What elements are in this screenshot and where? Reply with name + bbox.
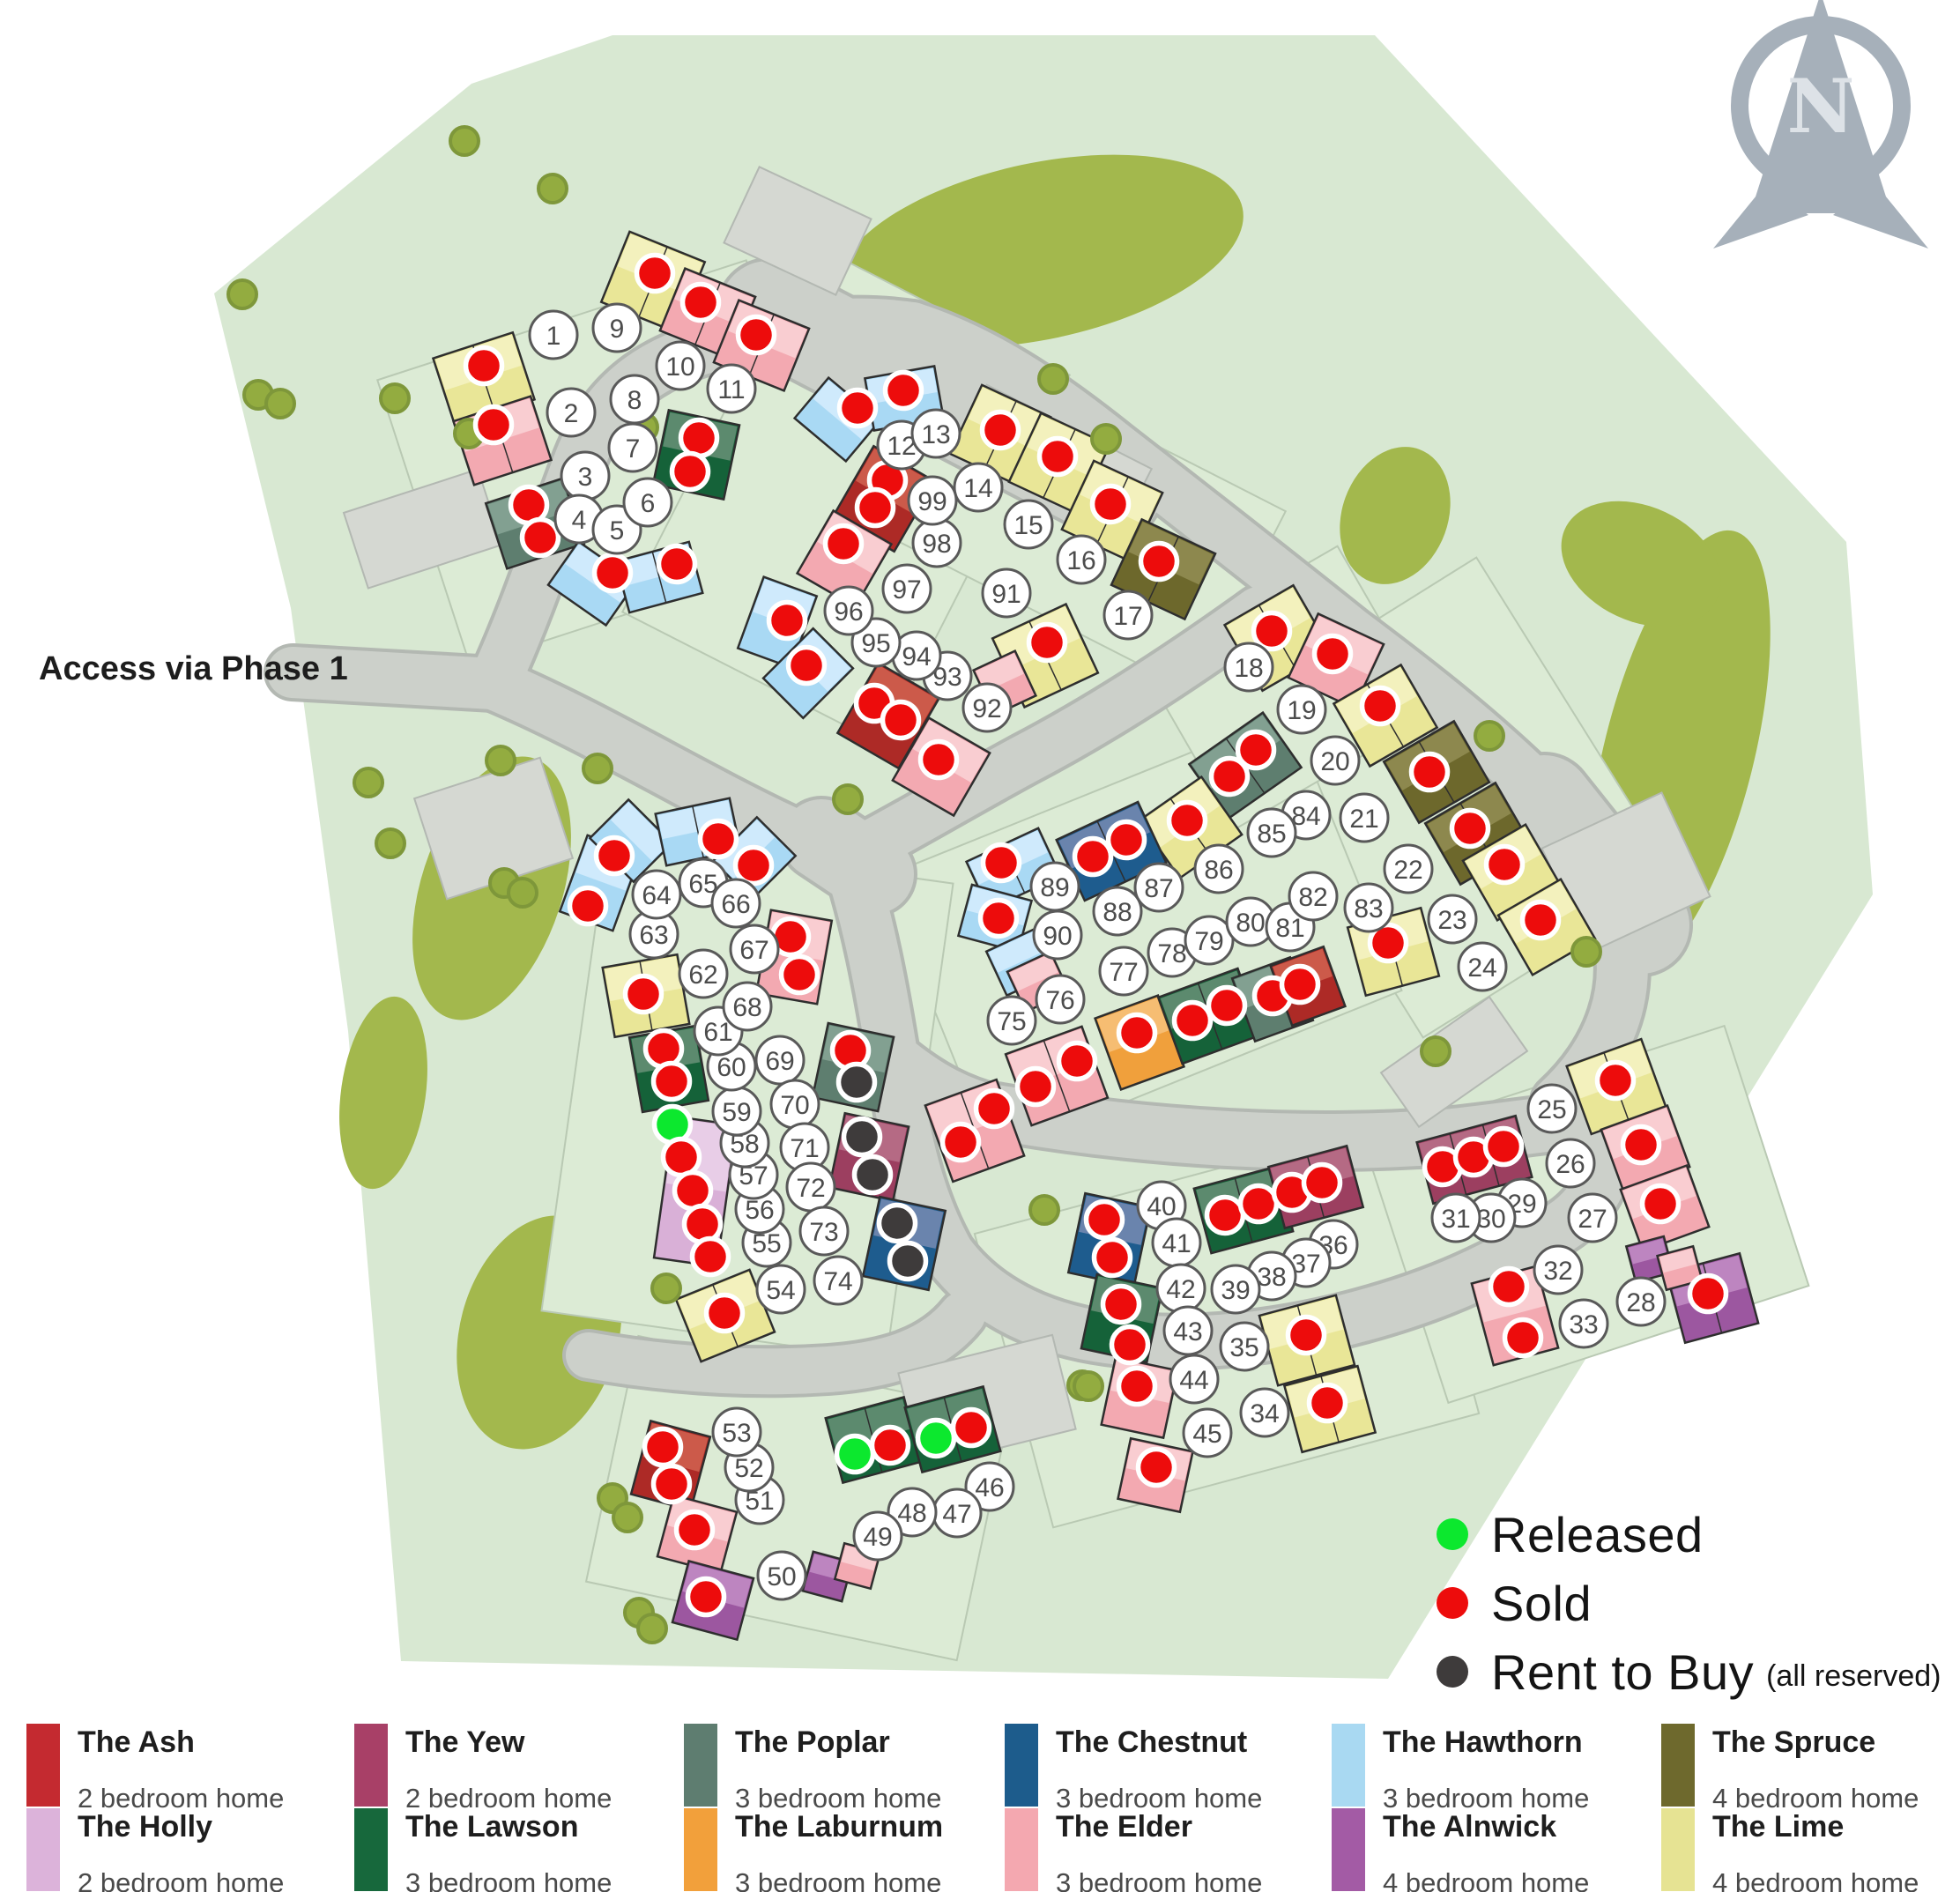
svg-text:3: 3 bbox=[578, 463, 593, 492]
tree-icon bbox=[376, 829, 405, 857]
plot-marker-24[interactable]: 24 bbox=[1459, 943, 1506, 991]
svg-text:7: 7 bbox=[626, 434, 641, 464]
svg-text:11: 11 bbox=[717, 375, 745, 404]
svg-text:76: 76 bbox=[1045, 986, 1074, 1015]
status-dot-sold bbox=[597, 838, 633, 874]
status-dot-sold bbox=[1282, 967, 1318, 1003]
status-dot-sold bbox=[1207, 1198, 1244, 1234]
plot-marker-19[interactable]: 19 bbox=[1278, 686, 1325, 733]
svg-text:39: 39 bbox=[1221, 1276, 1250, 1305]
svg-text:24: 24 bbox=[1467, 953, 1496, 983]
status-dot-sold bbox=[688, 1579, 724, 1615]
plot-marker-86[interactable]: 86 bbox=[1195, 845, 1243, 893]
svg-text:14: 14 bbox=[963, 474, 992, 503]
svg-text:34: 34 bbox=[1250, 1399, 1279, 1428]
plot-marker-59[interactable]: 59 bbox=[713, 1087, 761, 1135]
plot-marker-74[interactable]: 74 bbox=[814, 1257, 862, 1304]
svg-text:99: 99 bbox=[917, 487, 947, 516]
svg-text:27: 27 bbox=[1578, 1205, 1607, 1234]
svg-text:67: 67 bbox=[739, 936, 768, 965]
plot-marker-16[interactable]: 16 bbox=[1058, 536, 1105, 583]
tree-icon bbox=[228, 280, 256, 308]
access-label: Access via Phase 1 bbox=[39, 650, 348, 688]
svg-text:91: 91 bbox=[991, 580, 1021, 609]
svg-text:38: 38 bbox=[1257, 1263, 1286, 1292]
svg-text:63: 63 bbox=[639, 921, 668, 950]
tree-icon bbox=[266, 390, 294, 418]
plot-marker-96[interactable]: 96 bbox=[825, 587, 872, 634]
svg-text:87: 87 bbox=[1144, 874, 1173, 903]
svg-text:35: 35 bbox=[1229, 1333, 1258, 1362]
plot-marker-21[interactable]: 21 bbox=[1340, 794, 1388, 842]
svg-text:8: 8 bbox=[627, 386, 642, 415]
svg-text:77: 77 bbox=[1109, 958, 1138, 987]
svg-text:2: 2 bbox=[564, 399, 579, 428]
plot-marker-23[interactable]: 23 bbox=[1429, 895, 1476, 943]
status-dot-sold bbox=[1315, 636, 1351, 672]
svg-text:74: 74 bbox=[823, 1267, 852, 1296]
status-dot-sold bbox=[570, 888, 606, 924]
svg-text:47: 47 bbox=[942, 1500, 971, 1529]
status-dot-sold bbox=[976, 1091, 1013, 1127]
status-dot-sold bbox=[1018, 1069, 1054, 1105]
svg-text:69: 69 bbox=[765, 1047, 794, 1076]
plot-marker-18[interactable]: 18 bbox=[1225, 643, 1273, 691]
status-legend-label: Sold bbox=[1491, 1575, 1592, 1632]
plot-marker-87[interactable]: 87 bbox=[1135, 864, 1183, 911]
plot-marker-42[interactable]: 42 bbox=[1157, 1265, 1205, 1312]
site-plan: 1234567891011121314151617181920212223242… bbox=[0, 0, 1960, 1892]
svg-text:97: 97 bbox=[892, 575, 921, 605]
status-dot-sold bbox=[736, 848, 772, 884]
status-dot-sold bbox=[664, 1139, 700, 1176]
status-legend-suffix: (all reserved) bbox=[1766, 1651, 1941, 1694]
svg-text:98: 98 bbox=[922, 530, 951, 559]
status-dot-sold bbox=[1112, 1327, 1148, 1363]
status-dot-sold bbox=[693, 1239, 729, 1275]
tree-icon bbox=[486, 746, 515, 775]
status-dot-sold bbox=[1093, 486, 1129, 523]
status-dot-sold bbox=[677, 1512, 713, 1548]
svg-text:64: 64 bbox=[642, 881, 671, 910]
plot-marker-25[interactable]: 25 bbox=[1528, 1085, 1576, 1132]
plot-marker-70[interactable]: 70 bbox=[771, 1080, 819, 1128]
svg-text:79: 79 bbox=[1194, 927, 1223, 956]
plot-marker-34[interactable]: 34 bbox=[1241, 1389, 1288, 1436]
svg-text:19: 19 bbox=[1287, 696, 1316, 725]
status-dot-sold bbox=[1254, 613, 1290, 649]
plot-marker-11[interactable]: 11 bbox=[708, 365, 755, 412]
svg-text:46: 46 bbox=[975, 1473, 1004, 1502]
status-dot-sold bbox=[659, 546, 695, 582]
plot-marker-10[interactable]: 10 bbox=[657, 342, 704, 390]
svg-text:18: 18 bbox=[1234, 654, 1263, 683]
plot-marker-73[interactable]: 73 bbox=[800, 1207, 848, 1255]
status-dot-sold bbox=[1103, 1287, 1140, 1323]
svg-text:49: 49 bbox=[863, 1523, 892, 1552]
plot-marker-17[interactable]: 17 bbox=[1104, 591, 1152, 639]
status-dot-sold bbox=[840, 390, 876, 427]
svg-text:10: 10 bbox=[665, 352, 694, 382]
status-dot-sold bbox=[1109, 822, 1145, 858]
plot-marker-83[interactable]: 83 bbox=[1345, 884, 1392, 931]
plot-marker-69[interactable]: 69 bbox=[756, 1036, 804, 1084]
svg-text:78: 78 bbox=[1157, 939, 1186, 968]
svg-text:22: 22 bbox=[1393, 856, 1422, 885]
plot-marker-92[interactable]: 92 bbox=[963, 684, 1011, 731]
svg-text:13: 13 bbox=[921, 420, 950, 449]
svg-text:23: 23 bbox=[1437, 906, 1466, 935]
status-dot-sold bbox=[983, 412, 1019, 449]
svg-text:6: 6 bbox=[641, 489, 656, 518]
status-legend-row-sold: Sold bbox=[1437, 1569, 1941, 1637]
plot-marker-44[interactable]: 44 bbox=[1170, 1355, 1218, 1403]
svg-text:9: 9 bbox=[610, 315, 625, 344]
tree-icon bbox=[652, 1274, 680, 1302]
status-dot-sold bbox=[654, 1466, 690, 1502]
plot-marker-15[interactable]: 15 bbox=[1005, 501, 1052, 548]
svg-text:43: 43 bbox=[1173, 1317, 1202, 1347]
plot-marker-27[interactable]: 27 bbox=[1569, 1194, 1616, 1242]
status-dot-sold bbox=[1087, 1202, 1123, 1238]
svg-text:62: 62 bbox=[688, 961, 717, 990]
svg-text:66: 66 bbox=[721, 890, 750, 919]
plot-marker-88[interactable]: 88 bbox=[1094, 887, 1141, 935]
status-dot-sold bbox=[984, 845, 1020, 881]
status-dot-sold bbox=[981, 901, 1017, 937]
tree-icon bbox=[1030, 1196, 1058, 1224]
svg-text:92: 92 bbox=[972, 694, 1001, 723]
svg-text:53: 53 bbox=[722, 1419, 751, 1448]
status-dot-sold bbox=[1598, 1063, 1634, 1099]
status-dot-sold bbox=[857, 490, 894, 526]
svg-text:80: 80 bbox=[1236, 909, 1265, 938]
status-dot-sold bbox=[476, 407, 512, 443]
svg-text:94: 94 bbox=[902, 642, 931, 671]
tree-icon bbox=[450, 127, 479, 155]
svg-text:70: 70 bbox=[780, 1091, 809, 1120]
status-dot-released bbox=[918, 1421, 954, 1457]
svg-text:N: N bbox=[1787, 63, 1855, 150]
plot-marker-72[interactable]: 72 bbox=[787, 1163, 835, 1211]
tree-icon bbox=[638, 1614, 666, 1643]
status-dot-sold bbox=[1095, 1240, 1131, 1276]
status-dot-sold bbox=[1412, 754, 1448, 790]
tree-icon bbox=[354, 768, 382, 797]
plot-marker-33[interactable]: 33 bbox=[1560, 1300, 1607, 1347]
tree-icon bbox=[1092, 425, 1120, 453]
status-dot-sold bbox=[883, 702, 919, 738]
status-dot-sold bbox=[872, 1428, 909, 1464]
status-dot-sold bbox=[672, 454, 709, 490]
status-dot-sold bbox=[886, 373, 922, 409]
plot-marker-32[interactable]: 32 bbox=[1534, 1246, 1582, 1294]
status-dot-sold bbox=[943, 1124, 979, 1161]
plot-marker-77[interactable]: 77 bbox=[1100, 947, 1147, 995]
svg-text:82: 82 bbox=[1298, 883, 1327, 912]
status-dot-sold bbox=[646, 1031, 682, 1067]
svg-text:44: 44 bbox=[1179, 1366, 1208, 1395]
svg-text:45: 45 bbox=[1192, 1420, 1221, 1449]
status-dot-sold bbox=[954, 1410, 990, 1446]
plot-marker-14[interactable]: 14 bbox=[954, 464, 1002, 511]
plot-marker-99[interactable]: 99 bbox=[909, 477, 956, 524]
svg-text:32: 32 bbox=[1543, 1257, 1572, 1286]
svg-text:21: 21 bbox=[1349, 805, 1378, 834]
status-dot-sold bbox=[1491, 1269, 1527, 1305]
status-dot-sold bbox=[1643, 1186, 1679, 1222]
status-dot-sold bbox=[683, 285, 719, 321]
svg-text:16: 16 bbox=[1066, 546, 1095, 575]
plot-marker-75[interactable]: 75 bbox=[988, 997, 1036, 1044]
tree-icon bbox=[583, 754, 612, 783]
status-dot-sold bbox=[1505, 1320, 1541, 1356]
svg-text:17: 17 bbox=[1113, 602, 1142, 631]
svg-text:26: 26 bbox=[1555, 1150, 1585, 1179]
plot-marker-43[interactable]: 43 bbox=[1164, 1307, 1212, 1354]
svg-text:54: 54 bbox=[766, 1276, 795, 1305]
plot-marker-39[interactable]: 39 bbox=[1212, 1265, 1259, 1313]
tree-icon bbox=[509, 879, 537, 907]
status-dot-rtb bbox=[844, 1119, 880, 1155]
tree-icon bbox=[1039, 365, 1067, 393]
status-dot-sold bbox=[1141, 544, 1177, 580]
tree-icon bbox=[538, 174, 567, 203]
svg-text:86: 86 bbox=[1204, 856, 1233, 885]
svg-text:83: 83 bbox=[1354, 894, 1383, 924]
plot-marker-67[interactable]: 67 bbox=[731, 925, 778, 973]
plot-marker-8[interactable]: 8 bbox=[611, 375, 658, 423]
plot-marker-98[interactable]: 98 bbox=[913, 519, 961, 567]
svg-text:15: 15 bbox=[1013, 511, 1043, 540]
plot-marker-1[interactable]: 1 bbox=[530, 311, 577, 359]
plot-marker-66[interactable]: 66 bbox=[712, 879, 760, 927]
status-dot-sold bbox=[921, 742, 957, 778]
status-legend-row-released: Released bbox=[1437, 1500, 1941, 1569]
status-dot-sold bbox=[1119, 1015, 1155, 1051]
status-dot-sold bbox=[1175, 1003, 1211, 1039]
status-dot-sold bbox=[1029, 625, 1065, 661]
plot-marker-28[interactable]: 28 bbox=[1617, 1278, 1665, 1325]
status-dot-sold bbox=[1523, 902, 1559, 939]
status-legend-dot-rtb bbox=[1437, 1656, 1468, 1688]
status-dot-sold bbox=[626, 976, 662, 1013]
status-dot-sold bbox=[1119, 1369, 1155, 1405]
status-dot-rtb bbox=[890, 1243, 926, 1280]
status-dot-sold bbox=[1075, 839, 1111, 875]
plot-marker-20[interactable]: 20 bbox=[1311, 737, 1359, 784]
svg-text:59: 59 bbox=[722, 1098, 751, 1127]
svg-text:52: 52 bbox=[734, 1454, 763, 1483]
status-dot-sold bbox=[1139, 1450, 1175, 1486]
svg-text:1: 1 bbox=[546, 322, 561, 351]
status-dot-sold bbox=[739, 317, 775, 353]
status-dot-sold bbox=[1241, 1186, 1277, 1222]
svg-text:28: 28 bbox=[1626, 1288, 1655, 1317]
status-dot-sold bbox=[681, 420, 717, 456]
status-legend-row-rtb: Rent to Buy(all reserved) bbox=[1437, 1637, 1941, 1706]
tree-icon bbox=[834, 785, 862, 813]
status-dot-sold bbox=[1169, 803, 1206, 839]
svg-text:81: 81 bbox=[1275, 914, 1304, 943]
status-dot-sold bbox=[707, 1295, 743, 1332]
svg-text:75: 75 bbox=[997, 1007, 1026, 1036]
svg-text:50: 50 bbox=[767, 1562, 796, 1592]
status-dot-sold bbox=[645, 1429, 681, 1465]
plot-marker-49[interactable]: 49 bbox=[854, 1512, 902, 1560]
svg-text:4: 4 bbox=[572, 506, 587, 535]
plot-marker-47[interactable]: 47 bbox=[933, 1489, 981, 1537]
status-dot-sold bbox=[466, 348, 502, 384]
status-dot-sold bbox=[1486, 1129, 1522, 1165]
plot-marker-62[interactable]: 62 bbox=[679, 950, 727, 998]
status-dot-rtb bbox=[880, 1206, 916, 1242]
tree-icon bbox=[613, 1503, 642, 1532]
svg-text:60: 60 bbox=[716, 1053, 746, 1082]
plot-marker-3[interactable]: 3 bbox=[561, 452, 609, 500]
plot-marker-82[interactable]: 82 bbox=[1289, 872, 1337, 920]
svg-text:5: 5 bbox=[610, 516, 625, 545]
plot-marker-7[interactable]: 7 bbox=[609, 424, 657, 471]
svg-text:20: 20 bbox=[1320, 747, 1349, 776]
status-dot-sold bbox=[1209, 988, 1245, 1024]
plot-marker-90[interactable]: 90 bbox=[1034, 911, 1081, 959]
status-dot-released bbox=[837, 1436, 873, 1473]
status-dot-sold bbox=[523, 520, 559, 556]
svg-text:72: 72 bbox=[796, 1174, 825, 1203]
status-legend-label: Rent to Buy bbox=[1491, 1643, 1754, 1701]
tree-icon bbox=[381, 384, 409, 412]
status-dot-sold bbox=[675, 1173, 711, 1209]
status-dot-sold bbox=[685, 1206, 721, 1243]
plot-marker-50[interactable]: 50 bbox=[758, 1552, 806, 1599]
status-dot-sold bbox=[1362, 688, 1399, 724]
svg-text:68: 68 bbox=[732, 993, 761, 1022]
plot-marker-91[interactable]: 91 bbox=[983, 569, 1030, 617]
plot-marker-2[interactable]: 2 bbox=[547, 389, 595, 436]
status-dot-rtb bbox=[839, 1065, 875, 1101]
status-dot-sold bbox=[637, 256, 673, 292]
plot-marker-31[interactable]: 31 bbox=[1432, 1194, 1480, 1242]
plot-marker-13[interactable]: 13 bbox=[912, 410, 960, 457]
svg-text:25: 25 bbox=[1537, 1095, 1566, 1124]
svg-text:41: 41 bbox=[1162, 1229, 1191, 1258]
svg-text:73: 73 bbox=[809, 1218, 838, 1247]
tree-icon bbox=[1572, 938, 1600, 966]
svg-text:31: 31 bbox=[1441, 1205, 1470, 1234]
svg-text:96: 96 bbox=[834, 597, 863, 627]
status-dot-sold bbox=[1212, 759, 1248, 795]
plot-marker-53[interactable]: 53 bbox=[713, 1408, 761, 1456]
svg-text:56: 56 bbox=[745, 1196, 774, 1225]
status-dot-sold bbox=[1487, 847, 1523, 883]
status-dot-sold bbox=[595, 555, 631, 591]
status-legend: ReleasedSoldRent to Buy(all reserved) bbox=[1437, 1500, 1941, 1706]
status-legend-dot-sold bbox=[1437, 1587, 1468, 1619]
svg-text:42: 42 bbox=[1166, 1275, 1195, 1304]
tree-icon bbox=[1074, 1372, 1102, 1400]
plot-marker-35[interactable]: 35 bbox=[1221, 1323, 1268, 1370]
plot-marker-76[interactable]: 76 bbox=[1036, 976, 1084, 1023]
status-legend-dot-released bbox=[1437, 1518, 1468, 1550]
status-dot-sold bbox=[701, 821, 737, 857]
plot-marker-54[interactable]: 54 bbox=[757, 1265, 805, 1313]
svg-text:33: 33 bbox=[1569, 1310, 1598, 1339]
status-dot-sold bbox=[1690, 1276, 1726, 1312]
status-dot-sold bbox=[826, 526, 862, 562]
status-dot-sold bbox=[1288, 1317, 1325, 1354]
svg-text:89: 89 bbox=[1040, 873, 1069, 902]
status-dot-sold bbox=[1304, 1165, 1340, 1201]
plot-marker-85[interactable]: 85 bbox=[1248, 809, 1296, 857]
road bbox=[821, 839, 874, 874]
plot-marker-41[interactable]: 41 bbox=[1153, 1219, 1200, 1266]
status-dot-sold bbox=[789, 648, 825, 684]
plot-marker-6[interactable]: 6 bbox=[624, 479, 672, 526]
plot-marker-68[interactable]: 68 bbox=[724, 983, 771, 1030]
tree-icon bbox=[1475, 722, 1503, 750]
status-dot-sold bbox=[654, 1064, 690, 1100]
status-legend-label: Released bbox=[1491, 1506, 1704, 1563]
status-dot-sold bbox=[1059, 1043, 1095, 1080]
plot-marker-89[interactable]: 89 bbox=[1031, 863, 1079, 910]
status-dot-rtb bbox=[855, 1157, 891, 1193]
svg-text:48: 48 bbox=[897, 1499, 926, 1528]
svg-text:88: 88 bbox=[1102, 898, 1132, 927]
svg-text:85: 85 bbox=[1257, 820, 1286, 849]
svg-text:95: 95 bbox=[861, 629, 890, 658]
plot-marker-64[interactable]: 64 bbox=[633, 871, 680, 918]
status-dot-sold bbox=[1452, 811, 1489, 847]
status-dot-sold bbox=[1310, 1385, 1346, 1421]
plot-marker-9[interactable]: 9 bbox=[593, 304, 641, 352]
plot-marker-22[interactable]: 22 bbox=[1385, 845, 1432, 893]
status-dot-sold bbox=[1040, 439, 1076, 475]
status-dot-sold bbox=[1623, 1127, 1659, 1163]
plot-marker-97[interactable]: 97 bbox=[883, 565, 931, 612]
tree-icon bbox=[1422, 1037, 1450, 1065]
plot-marker-26[interactable]: 26 bbox=[1547, 1139, 1594, 1187]
status-dot-sold bbox=[769, 603, 806, 639]
svg-text:90: 90 bbox=[1043, 922, 1072, 951]
north-compass-icon: N bbox=[1713, 0, 1928, 249]
svg-text:40: 40 bbox=[1147, 1192, 1176, 1221]
svg-text:71: 71 bbox=[790, 1134, 819, 1163]
status-dot-sold bbox=[782, 957, 818, 993]
plot-marker-45[interactable]: 45 bbox=[1184, 1409, 1231, 1457]
